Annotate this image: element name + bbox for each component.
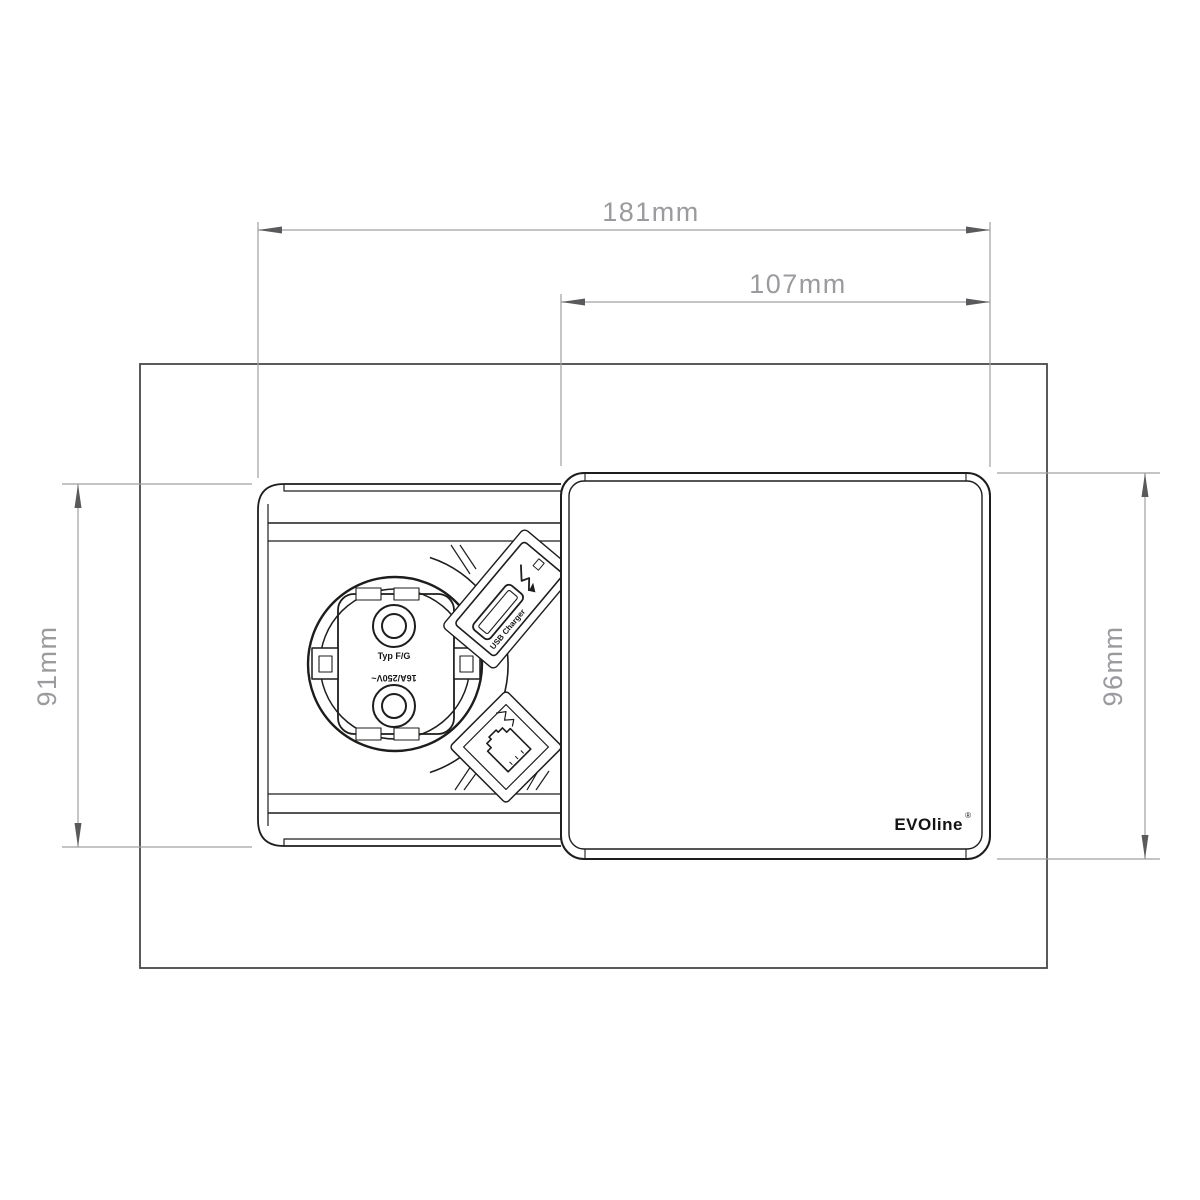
technical-drawing-canvas: 181mm 107mm 91mm 96mm: [0, 0, 1200, 1200]
arrowhead-left: [561, 299, 585, 306]
wall-line: [460, 545, 476, 569]
body-top-lip: [284, 484, 561, 491]
dimension-label-91mm: 91mm: [32, 625, 62, 706]
arrowhead-right: [966, 299, 990, 306]
body-bottom-lip: [284, 839, 561, 846]
socket-rating-label: 16A/250V~: [371, 673, 416, 683]
dimension-body-height: 91mm: [32, 484, 252, 847]
wall-line: [536, 771, 549, 790]
technical-drawing-page: 181mm 107mm 91mm 96mm: [0, 0, 1200, 1200]
wall-line: [451, 545, 470, 574]
registered-trademark-symbol: ®: [965, 811, 971, 820]
arrowhead-left: [258, 227, 282, 234]
dimension-label-181mm: 181mm: [602, 197, 700, 227]
arrowhead-right: [966, 227, 990, 234]
arrowhead-top: [1142, 473, 1149, 497]
arrowhead-bottom: [1142, 835, 1149, 859]
earth-clip-left: [312, 648, 338, 679]
dimension-label-107mm: 107mm: [749, 269, 847, 299]
socket-notch: [356, 728, 381, 740]
brand-text: EVOline: [894, 815, 963, 834]
dimension-label-96mm: 96mm: [1098, 625, 1128, 706]
socket-notch: [394, 728, 419, 740]
schuko-socket: Typ F/G 16A/250V~: [308, 577, 482, 751]
dimension-total-width: 181mm: [258, 197, 990, 478]
dimension-cover-width: 107mm: [561, 269, 990, 466]
evoline-logo: EVOline ®: [894, 811, 971, 834]
arrowhead-top: [75, 484, 82, 508]
socket-type-label: Typ F/G: [378, 651, 411, 661]
cover-outer-edge: [561, 473, 990, 859]
sliding-cover: EVOline ®: [561, 473, 990, 859]
socket-notch: [394, 588, 419, 600]
socket-notch: [356, 588, 381, 600]
dimension-cover-height: 96mm: [997, 473, 1160, 859]
arrowhead-bottom: [75, 823, 82, 847]
